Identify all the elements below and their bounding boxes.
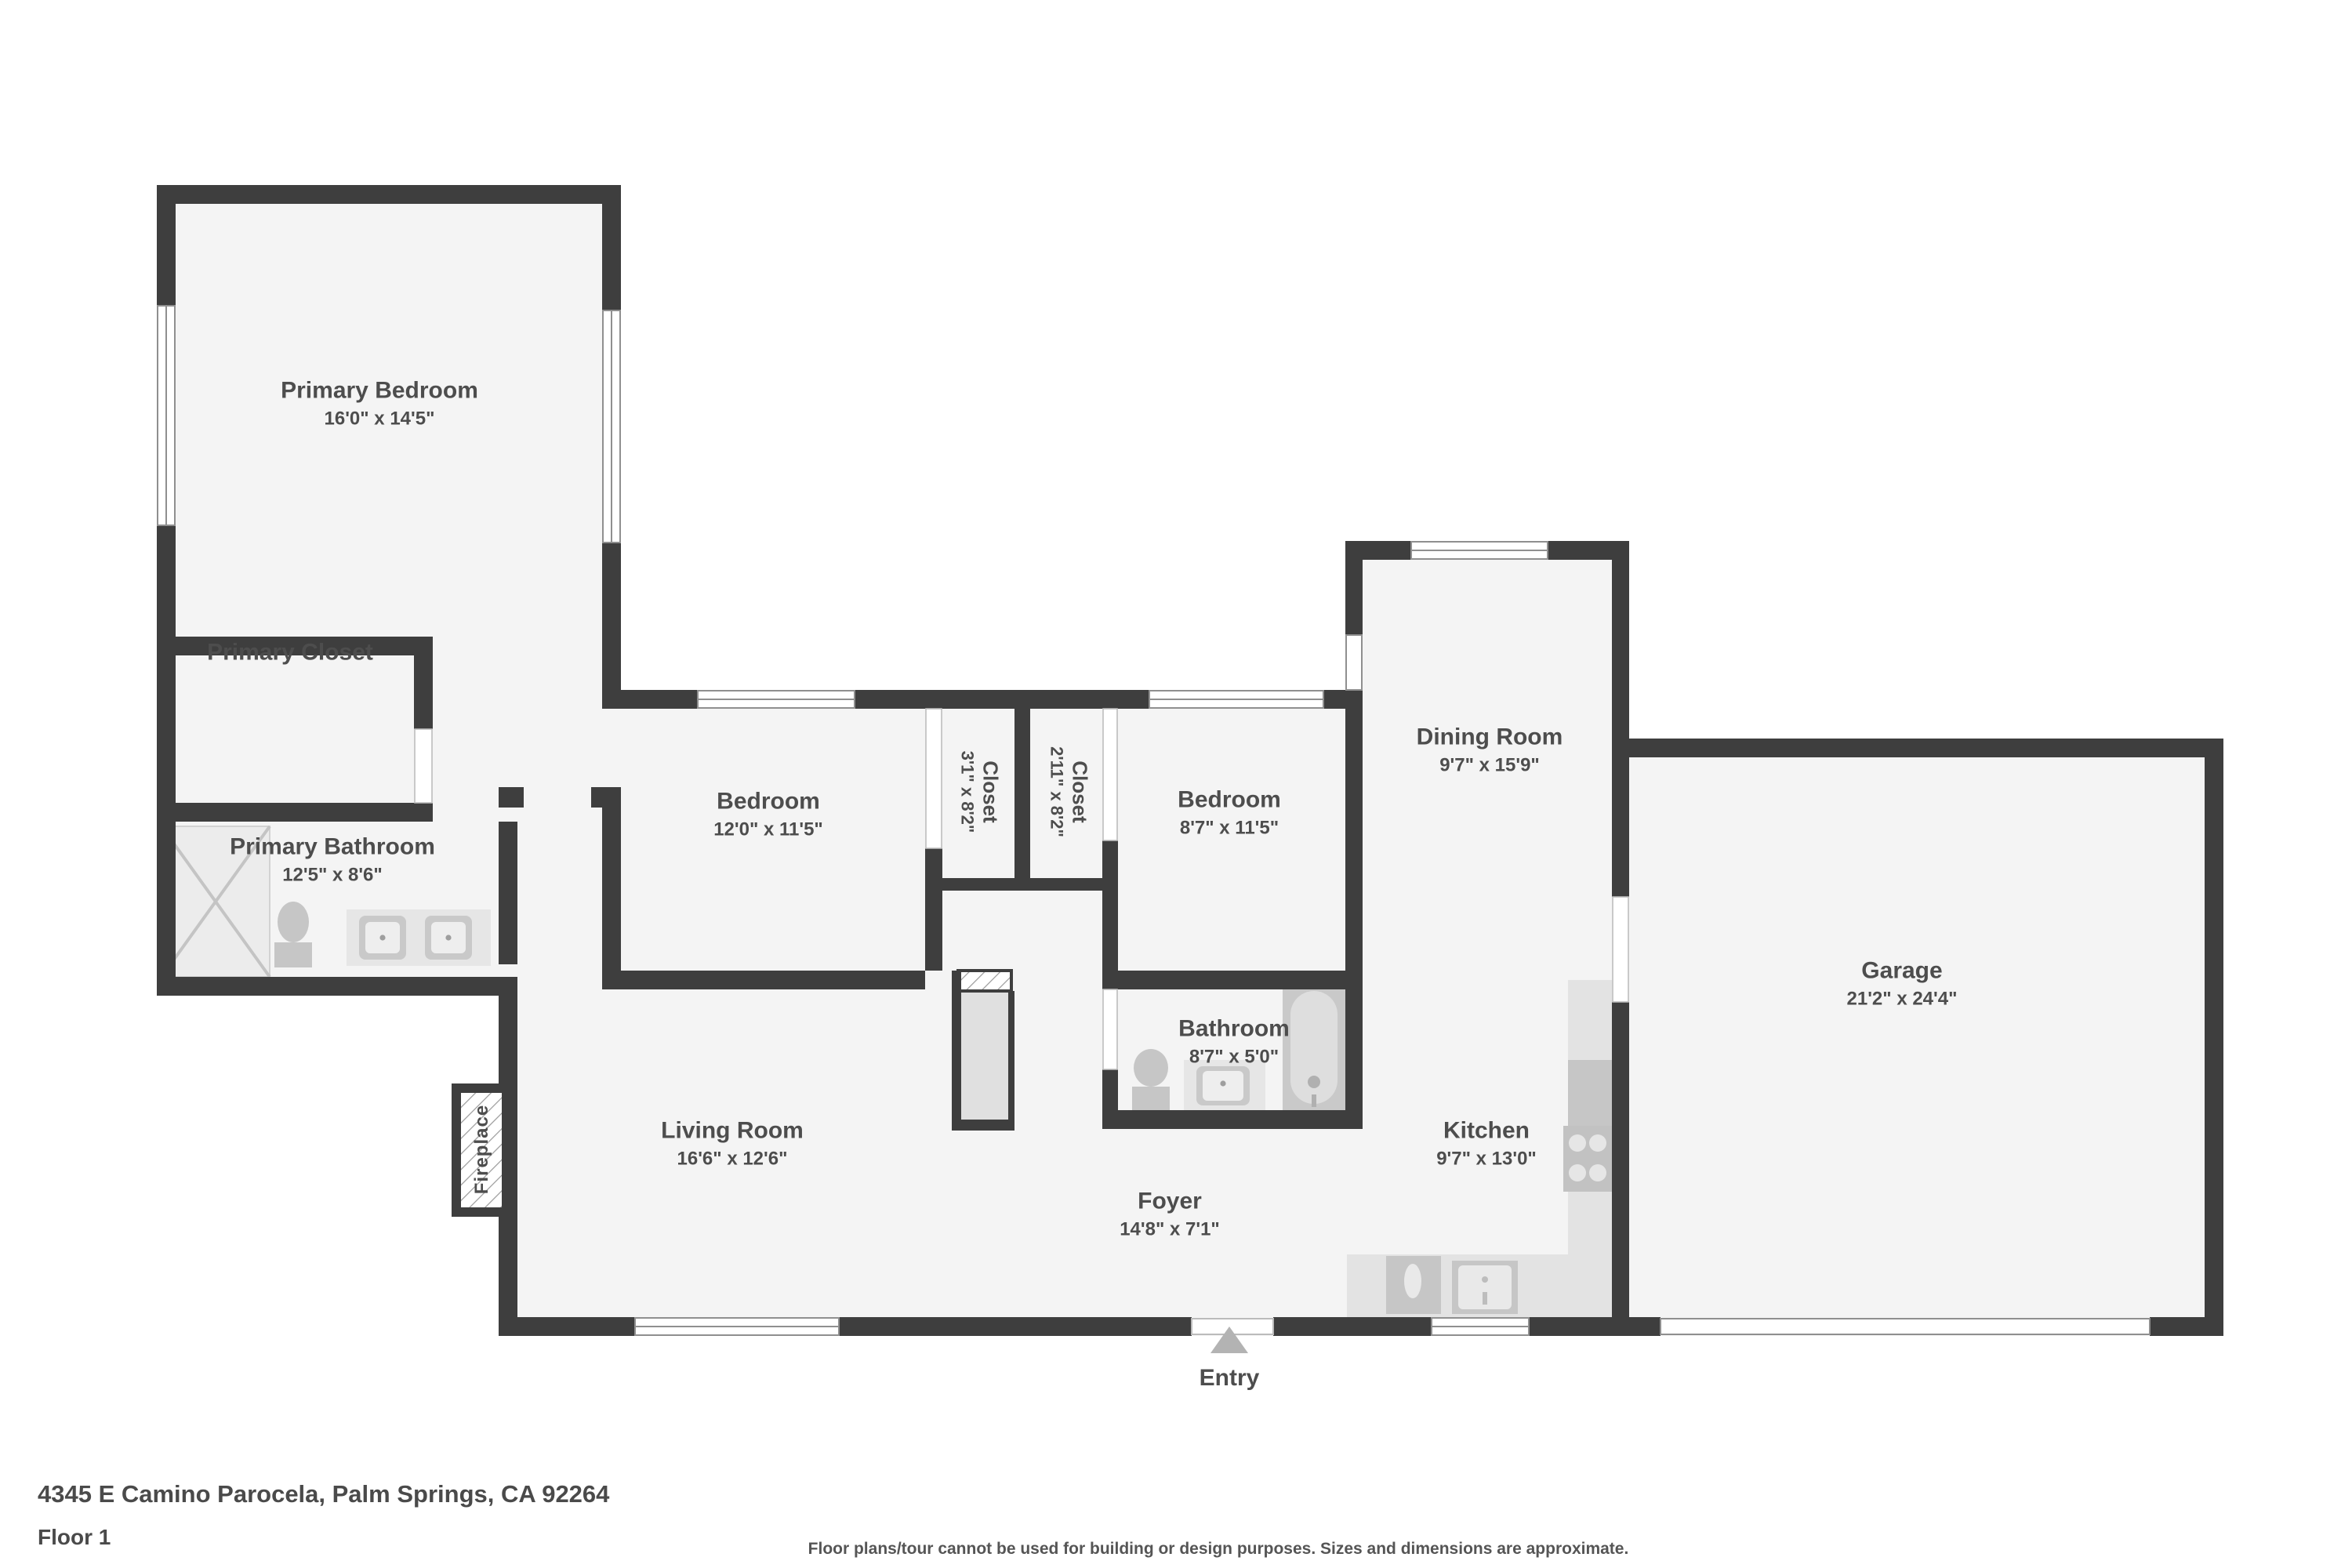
room-label-living-room: Living Room 16'6" x 12'6" (661, 1118, 804, 1172)
wall-segment (1008, 991, 1014, 1120)
room-label-foyer: Foyer 14'8" x 7'1" (1120, 1189, 1220, 1243)
wall-segment (602, 543, 621, 709)
entry-label: Entry (1200, 1365, 1260, 1392)
room-label-dining-room: Dining Room 9'7" x 15'9" (1417, 724, 1563, 779)
wall-segment (1612, 1002, 1629, 1336)
wall-segment (1102, 1110, 1363, 1129)
door-garage-kitchen (1613, 897, 1628, 1002)
wall-segment (602, 787, 621, 989)
toilet-hall-icon (1132, 1049, 1170, 1110)
floorplan-page: Primary Bedroom 16'0" x 14'5" Primary Cl… (0, 0, 2352, 1568)
wall-segment (499, 787, 524, 808)
wall-segment (925, 848, 942, 971)
wall-segment (157, 803, 433, 822)
room-label-bedroom-left: Bedroom 12'0" x 11'5" (713, 789, 823, 843)
wall-segment (414, 655, 433, 729)
window-dining-top (1411, 542, 1548, 559)
wall-segment (1345, 541, 1411, 560)
wall-segment (157, 204, 176, 306)
bathtub-icon (1283, 985, 1345, 1113)
room-label-closet-left: Closet 3'1" x 8'2" (954, 751, 1002, 833)
wall-segment (157, 185, 621, 204)
wall-segment (952, 1120, 1014, 1131)
wall-segment (1014, 709, 1030, 878)
floor-number-text: Floor 1 (38, 1524, 111, 1549)
door-closet-right (1103, 709, 1117, 840)
window-bedroom-left (698, 691, 855, 708)
wall-segment (1548, 541, 1629, 560)
wall-segment (855, 690, 1149, 709)
wall-segment (602, 204, 621, 310)
floor-garage (1629, 739, 2223, 1336)
room-label-garage: Garage 21'2" x 24'4" (1847, 958, 1958, 1012)
room-label-bedroom-right: Bedroom 8'7" x 11'5" (1178, 787, 1281, 841)
window-kitchen (1432, 1318, 1529, 1335)
floorplan-drawing (0, 0, 2352, 1568)
wall-segment (1612, 560, 1629, 897)
wall-segment (2205, 739, 2223, 1336)
door-closet-left (926, 709, 942, 848)
window-primary-bedroom-right (603, 310, 620, 543)
window-dining-west (1346, 635, 1362, 690)
wall-segment (157, 525, 176, 996)
fridge-icon (1568, 1060, 1612, 1126)
room-label-bathroom: Bathroom 8'7" x 5'0" (1178, 1016, 1290, 1070)
wall-segment (157, 977, 517, 996)
wall-segment (499, 1317, 635, 1336)
cooktop-icon (1563, 1126, 1612, 1192)
window-bedroom-right (1149, 691, 1323, 708)
room-label-primary-closet: Primary Closet (207, 639, 373, 669)
room-label-closet-right: Closet 2'11" x 8'2" (1044, 746, 1091, 837)
fireplace-label: Fireplace (470, 1105, 492, 1194)
double-vanity-icon (347, 909, 491, 966)
disclaimer-text: Floor plans/tour cannot be used for buil… (808, 1540, 1629, 1559)
wall-segment (1102, 840, 1118, 989)
door-bathroom (1103, 989, 1117, 1069)
dishwasher-icon (1452, 1261, 1518, 1314)
wall-segment (1102, 971, 1363, 989)
room-label-primary-bathroom: Primary Bathroom 12'5" x 8'6" (230, 834, 435, 888)
wall-segment (602, 690, 698, 709)
wall-segment (925, 878, 1118, 891)
wall-segment (499, 822, 517, 964)
wall-segment (602, 971, 925, 989)
garage-door-opening (1661, 1319, 2150, 1334)
room-label-primary-bedroom: Primary Bedroom 16'0" x 14'5" (281, 378, 478, 432)
wall-segment (2150, 1317, 2223, 1336)
wall-segment (1629, 739, 2223, 757)
address-text: 4345 E Camino Parocela, Palm Springs, CA… (38, 1482, 609, 1510)
wall-segment (839, 1317, 1192, 1336)
hall-chase (958, 971, 1011, 1120)
wall-segment (952, 971, 961, 1131)
door-primary-closet (415, 729, 432, 803)
kitchen-sink-icon (1386, 1256, 1441, 1314)
wall-segment (1345, 690, 1363, 1129)
floorplan-canvas: Primary Bedroom 16'0" x 14'5" Primary Cl… (0, 0, 2352, 1568)
wall-segment (499, 996, 517, 1083)
window-living-room (635, 1318, 839, 1335)
window-primary-bedroom-left (158, 306, 175, 525)
room-label-kitchen: Kitchen 9'7" x 13'0" (1436, 1118, 1537, 1172)
